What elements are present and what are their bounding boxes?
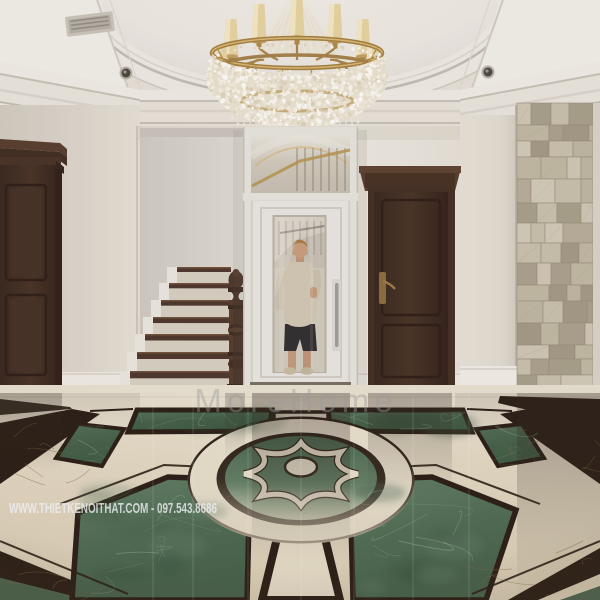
- svg-text:WWW.THIETKENOITHAT.COM - 097.5: WWW.THIETKENOITHAT.COM - 097.543.8686: [9, 500, 217, 517]
- svg-text:MoreHome: MoreHome: [194, 382, 397, 419]
